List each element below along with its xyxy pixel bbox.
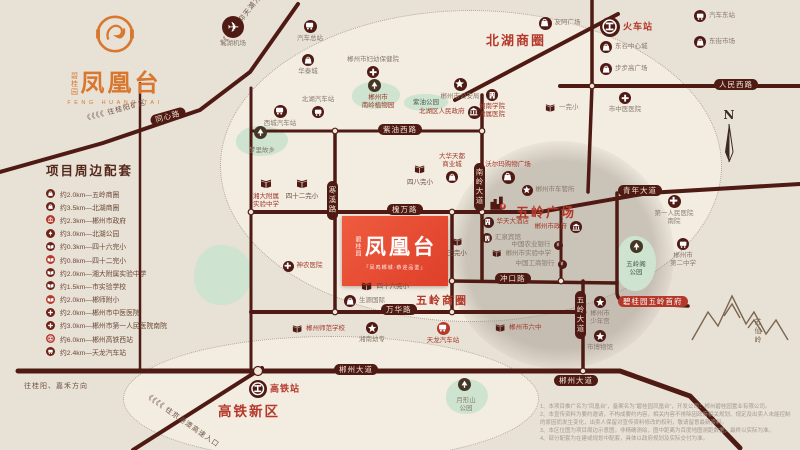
tree-icon xyxy=(630,240,643,253)
poi-star-icon xyxy=(366,322,378,334)
poi-rail-icon xyxy=(600,17,620,37)
poi-label: 一完小 xyxy=(559,104,579,112)
amenity-text: 约3.0km—郴州市第一人民医院南院 xyxy=(60,320,167,330)
bookw-icon xyxy=(46,255,55,264)
poi-label: 三完小 xyxy=(447,250,467,258)
poi-label: 华泰城 xyxy=(298,68,318,76)
poi-label: 北湖区人民政府 xyxy=(419,108,465,116)
poi-label: 湘大附属实验中学 xyxy=(253,193,279,209)
amenity-text: 约3.5km—北湖商圈 xyxy=(60,202,119,212)
phoenix-seal-icon xyxy=(95,14,135,54)
amenity-item: 约2.0km—郴师附小 xyxy=(46,293,216,306)
poi-label: 郴州市第二中学 xyxy=(670,252,696,268)
poi-label: 中国农业银行 xyxy=(512,241,551,249)
road-badge: 五岭大道 xyxy=(575,291,586,339)
poi-label: 四十二完小 xyxy=(286,193,319,201)
logo-name: 凤凰台 xyxy=(81,63,162,98)
poi-label: 湘南幼专 xyxy=(359,336,385,344)
poi-label: 郴州市实验中学 xyxy=(506,250,552,258)
mountain-sketch xyxy=(688,282,792,346)
poi-cross-icon xyxy=(619,92,631,104)
road-badge: 郴州大道 xyxy=(554,375,598,386)
compass: N xyxy=(720,108,738,171)
road-badge: 碧桂园五岭首府 xyxy=(618,296,688,307)
poi-gov-icon xyxy=(570,221,582,233)
poi-star-icon xyxy=(454,78,467,91)
road-badge: 万华路 xyxy=(381,304,417,315)
poi-mall-icon xyxy=(694,36,706,48)
road-badge: 青年大道 xyxy=(618,185,662,196)
poi-book-icon xyxy=(544,102,556,114)
poi-bus-icon xyxy=(304,20,317,33)
amenity-text: 约1.5km—市实验学校 xyxy=(60,281,126,291)
road-badge: 槐万路 xyxy=(387,204,423,215)
amenity-item: 约0.8km—四十二完小 xyxy=(46,253,216,266)
amenity-item: 约2.0km—郴州市中医医院 xyxy=(46,306,216,319)
poi-mall-icon xyxy=(502,171,515,184)
amenity-item: 约3.0km—郴州市第一人民医院南院 xyxy=(46,319,216,332)
poi-label: 市博物馆 xyxy=(587,344,613,352)
disclaimer-line: 2、本宣传资料为要约邀请，不构成要约内容，相关内容不排除因政府相关规划、规定及出… xyxy=(540,412,794,428)
poi-label: 郴州市政府 xyxy=(535,223,568,231)
poi-bus-icon xyxy=(274,105,287,118)
bookw-icon xyxy=(46,281,55,290)
poi-bus-icon xyxy=(694,10,706,22)
amenity-item: 约2.0km—湘大附属实验中学 xyxy=(46,266,216,279)
svg-text:¥: ¥ xyxy=(502,205,505,211)
poi-mall-icon xyxy=(344,295,356,307)
poi-rail-icon xyxy=(249,380,267,398)
poi-label: 高铁站 xyxy=(270,383,300,394)
poi-star-icon xyxy=(594,296,606,308)
compass-needle-icon xyxy=(720,122,738,166)
poi-city-icon: ¥ xyxy=(488,193,508,213)
poi-bank-icon: ¥ xyxy=(554,241,563,250)
mountain-label: 苏仙岭 xyxy=(752,318,762,345)
poi-label: 市中医医院 xyxy=(609,106,642,114)
road-badge: 人民西路 xyxy=(714,79,758,90)
poi-label: 第一人民医院南院 xyxy=(655,210,694,226)
poi-hotel-icon xyxy=(486,89,498,101)
poi-label: 东街市场 xyxy=(709,38,735,46)
park-label: 月形山公园 xyxy=(456,397,476,413)
poi-star-icon xyxy=(522,185,533,196)
poi-label: 神农医院 xyxy=(297,262,323,270)
road-badge: 寒溪路 xyxy=(327,181,338,220)
amenities-panel: 项目周边配套 约2.0km—五岭商圈约3.5km—北湖商圈约2.3km—郴州市政… xyxy=(46,160,216,358)
district-label: 北湖商圈 xyxy=(486,30,546,49)
poi-label: 汽车总站 xyxy=(297,35,323,43)
bookw-icon xyxy=(46,242,55,251)
poi-book-icon xyxy=(361,281,374,294)
amenity-text: 约2.0km—五岭商圈 xyxy=(60,189,119,199)
project-marker: 碧桂园 凤凰台 「凤鸣郴城·恭迎品鉴」 xyxy=(342,216,448,286)
poi-book-icon xyxy=(492,249,503,260)
poi-label: 天龙汽车站 xyxy=(427,337,460,345)
poi-star-icon xyxy=(594,330,606,342)
poi-label: 郴州市六中 xyxy=(509,324,542,332)
poi-label: 北湖机场 xyxy=(220,40,246,48)
poi-bus-icon xyxy=(312,106,324,118)
poi-book-icon xyxy=(451,236,463,248)
compass-north-label: N xyxy=(720,108,738,122)
amenities-title: 项目周边配套 xyxy=(46,160,216,179)
poi-mall-icon xyxy=(600,41,612,53)
cross-icon xyxy=(46,308,55,317)
brand-logo: 碧桂园 凤凰台 FENG HUANG TAI xyxy=(40,14,190,106)
amenity-text: 约2.4km—天龙汽车站 xyxy=(60,347,126,357)
poi-hotel-icon xyxy=(482,233,492,243)
logo-tagline: FENG HUANG TAI xyxy=(40,100,190,106)
disclaimer-line: 4、部分配套为在建或规划中配套，具体以政府规划及实际交付为准。 xyxy=(540,436,794,444)
tree-icon xyxy=(46,229,55,238)
amenities-list: 约2.0km—五岭商圈约3.5km—北湖商圈约2.3km—郴州市政府约3.0km… xyxy=(46,187,216,358)
amenity-item: 约6.0km—郴州高铁西站 xyxy=(46,332,216,345)
poi-gov-icon xyxy=(468,106,481,119)
poi-bus-icon xyxy=(437,322,450,335)
poi-book-icon xyxy=(291,323,303,335)
bookw-icon xyxy=(46,268,55,277)
poi-label: 汽车东站 xyxy=(709,12,735,20)
district-label: 高铁新区 xyxy=(218,400,280,420)
amenity-item: 约3.0km—北湖公园 xyxy=(46,227,216,240)
poi-label: 郴州市少年宫 xyxy=(590,310,610,326)
project-brand: 碧桂园 xyxy=(353,236,362,257)
poi-label: 西城汽车站 xyxy=(264,120,297,128)
direction-label: 往桂阳、嘉禾方向 xyxy=(24,381,88,391)
project-name: 凤凰台 xyxy=(365,231,437,261)
poi-bus-icon xyxy=(677,238,689,250)
poi-book-icon xyxy=(295,177,309,191)
amenity-text: 约2.0km—郴州市中医医院 xyxy=(60,307,140,317)
amenity-item: 约2.3km—郴州市政府 xyxy=(46,213,216,226)
poi-book-icon xyxy=(414,164,427,177)
poi-cross-icon xyxy=(283,261,294,272)
disclaimer-line: 1、本项目推广名为“凤凰台”，备案名为“碧桂园凤凰台”，开发公司：郴州碧桂园置业… xyxy=(540,404,794,412)
poi-hotel-icon xyxy=(483,217,494,228)
poi-label: 四十六完小 xyxy=(377,283,410,291)
amenity-text: 约2.0km—湘大附属实验中学 xyxy=(60,268,146,278)
road-chongkou xyxy=(452,281,617,283)
amenity-item: 约0.3km—四十六完小 xyxy=(46,240,216,253)
tree-icon xyxy=(458,378,471,391)
amenity-text: 约3.0km—北湖公园 xyxy=(60,228,119,238)
amenity-item: 约2.0km—五岭商圈 xyxy=(46,187,216,200)
amenity-text: 约2.3km—郴州市政府 xyxy=(60,215,126,225)
svg-text:¥: ¥ xyxy=(556,243,559,249)
poi-label: 郴州市公安局 xyxy=(441,93,480,101)
bus-icon xyxy=(46,347,55,356)
gov-icon xyxy=(46,215,55,224)
poi-plane-icon: ✈ xyxy=(222,16,244,38)
poi-label: 湘南学院附属医院 xyxy=(479,103,505,119)
poi-mall-icon xyxy=(446,171,458,183)
project-slogan: 「凤鸣郴城·恭迎品鉴」 xyxy=(364,264,427,271)
district-label: 五岭商圈 xyxy=(416,292,468,308)
amenity-item: 约3.5km—北湖商圈 xyxy=(46,200,216,213)
park-label: 梦里故乡 xyxy=(249,147,275,155)
poi-mall-icon xyxy=(600,63,612,75)
logo-brand: 碧桂园 xyxy=(69,72,79,96)
svg-text:¥: ¥ xyxy=(560,262,563,268)
poi-mall-icon xyxy=(302,54,314,66)
poi-label: 火车站 xyxy=(623,21,653,32)
amenity-text: 约6.0km—郴州高铁西站 xyxy=(60,334,133,344)
park-label: 五岭阁公园 xyxy=(626,261,646,277)
park-label: 紫油公园 xyxy=(413,99,439,107)
road-badge: 紫油西路 xyxy=(378,124,422,135)
poi-mall-icon xyxy=(539,17,552,30)
poi-label: 大华天都商业城 xyxy=(439,153,465,169)
disclaimer: 1、本项目推广名为“凤凰台”，备案名为“碧桂园凤凰台”，开发公司：郴州碧桂园置业… xyxy=(540,404,794,444)
poi-label: 步步高广场 xyxy=(615,65,648,73)
poi-label: 东谷中心城 xyxy=(615,43,648,51)
poi-cross-icon xyxy=(668,195,681,208)
rail-icon xyxy=(46,334,55,343)
poi-label: 沃尔玛购物广场 xyxy=(485,160,531,168)
amenity-text: 约2.0km—郴师附小 xyxy=(60,294,119,304)
svg-text:✈: ✈ xyxy=(227,20,239,36)
location-map: 郴州市南岭植物园紫油公园梦里故乡五岭阁公园月形山公园 同心路紫油西路槐万路南岭大… xyxy=(0,0,800,450)
bookw-icon xyxy=(46,295,55,304)
poi-label: 郴州师范学校 xyxy=(306,325,345,333)
mall-icon xyxy=(46,202,55,211)
poi-bank-icon: ¥ xyxy=(558,260,567,269)
disclaimer-line: 3、本区位图为项目周边示意图，非精确测绘，图中距离为百度地图测距数据，最终以实际… xyxy=(540,428,794,436)
poi-label: 郴州市车管所 xyxy=(536,186,575,194)
amenity-item: 约1.5km—市实验学校 xyxy=(46,279,216,292)
amenity-text: 约0.3km—四十六完小 xyxy=(60,241,126,251)
poi-label: 郴州市妇幼保健院 xyxy=(347,56,399,64)
tree-icon xyxy=(368,79,381,92)
road-badge: 南岭大道 xyxy=(474,163,485,211)
road-badge: 冲口路 xyxy=(495,273,531,284)
road-badge: 郴州大道 xyxy=(334,364,378,375)
cross-icon xyxy=(46,321,55,330)
amenity-item: 约2.4km—天龙汽车站 xyxy=(46,345,216,358)
park-label: 郴州市南岭植物园 xyxy=(362,94,395,110)
poi-label: 友阿广场 xyxy=(555,19,581,27)
poi-label: 中国工商银行 xyxy=(516,260,555,268)
poi-book-icon xyxy=(259,177,273,191)
poi-label: 四八完小 xyxy=(407,179,433,187)
mall-icon xyxy=(46,189,55,198)
poi-label: 华天大酒店 xyxy=(497,218,530,226)
poi-book-icon xyxy=(494,322,506,334)
poi-label: 北湖汽车站 xyxy=(302,96,335,104)
amenity-text: 约0.8km—四十二完小 xyxy=(60,255,126,265)
poi-label: 生源国际 xyxy=(359,297,385,305)
poi-cross-icon xyxy=(367,66,379,78)
